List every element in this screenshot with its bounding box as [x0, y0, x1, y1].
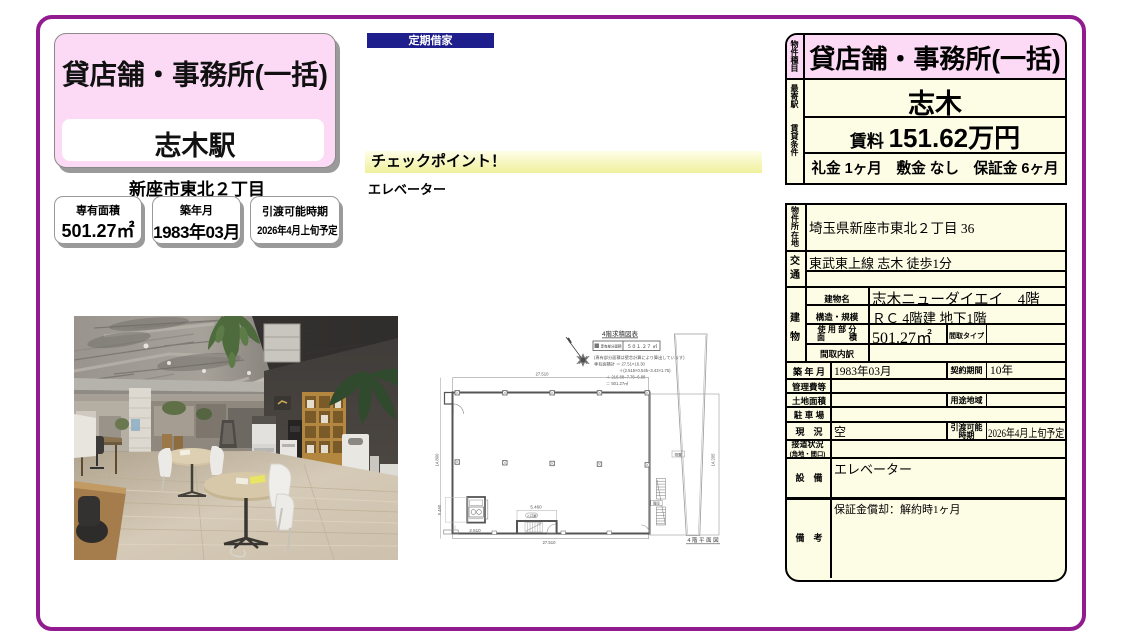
svg-text:専有面積計 ＝ 27.51×16.30: 専有面積計 ＝ 27.51×16.30: [594, 361, 646, 368]
svg-text:＋ 216.88−7.76−6.88: ＋ 216.88−7.76−6.88: [606, 375, 646, 380]
svg-text:階段: 階段: [653, 501, 660, 506]
svg-text:＝ 501.27㎡: ＝ 501.27㎡: [606, 380, 629, 386]
svg-text:5.460: 5.460: [530, 505, 542, 510]
svg-text:＋(2.515×0.545−3.43×1.75): ＋(2.515×0.545−3.43×1.75): [619, 368, 671, 373]
svg-text:4階求積図表: 4階求積図表: [602, 329, 639, 338]
svg-text:５０１.２７ ㎡: ５０１.２７ ㎡: [627, 343, 658, 349]
svg-text:(専有部分面積は壁芯計算により算出しています): (専有部分面積は壁芯計算により算出しています): [594, 354, 685, 361]
svg-text:入口扉: 入口扉: [527, 513, 538, 518]
svg-text:14.800: 14.800: [435, 453, 440, 466]
svg-text:14.205: 14.205: [711, 453, 716, 466]
svg-text:専有部分面積: 専有部分面積: [601, 344, 622, 349]
svg-text:4 階 平 面 図: 4 階 平 面 図: [687, 536, 719, 544]
svg-text:27.510: 27.510: [536, 372, 549, 377]
svg-text:2.510: 2.510: [469, 528, 481, 533]
svg-text:27.510: 27.510: [543, 540, 556, 545]
svg-text:5.460: 5.460: [437, 504, 442, 515]
